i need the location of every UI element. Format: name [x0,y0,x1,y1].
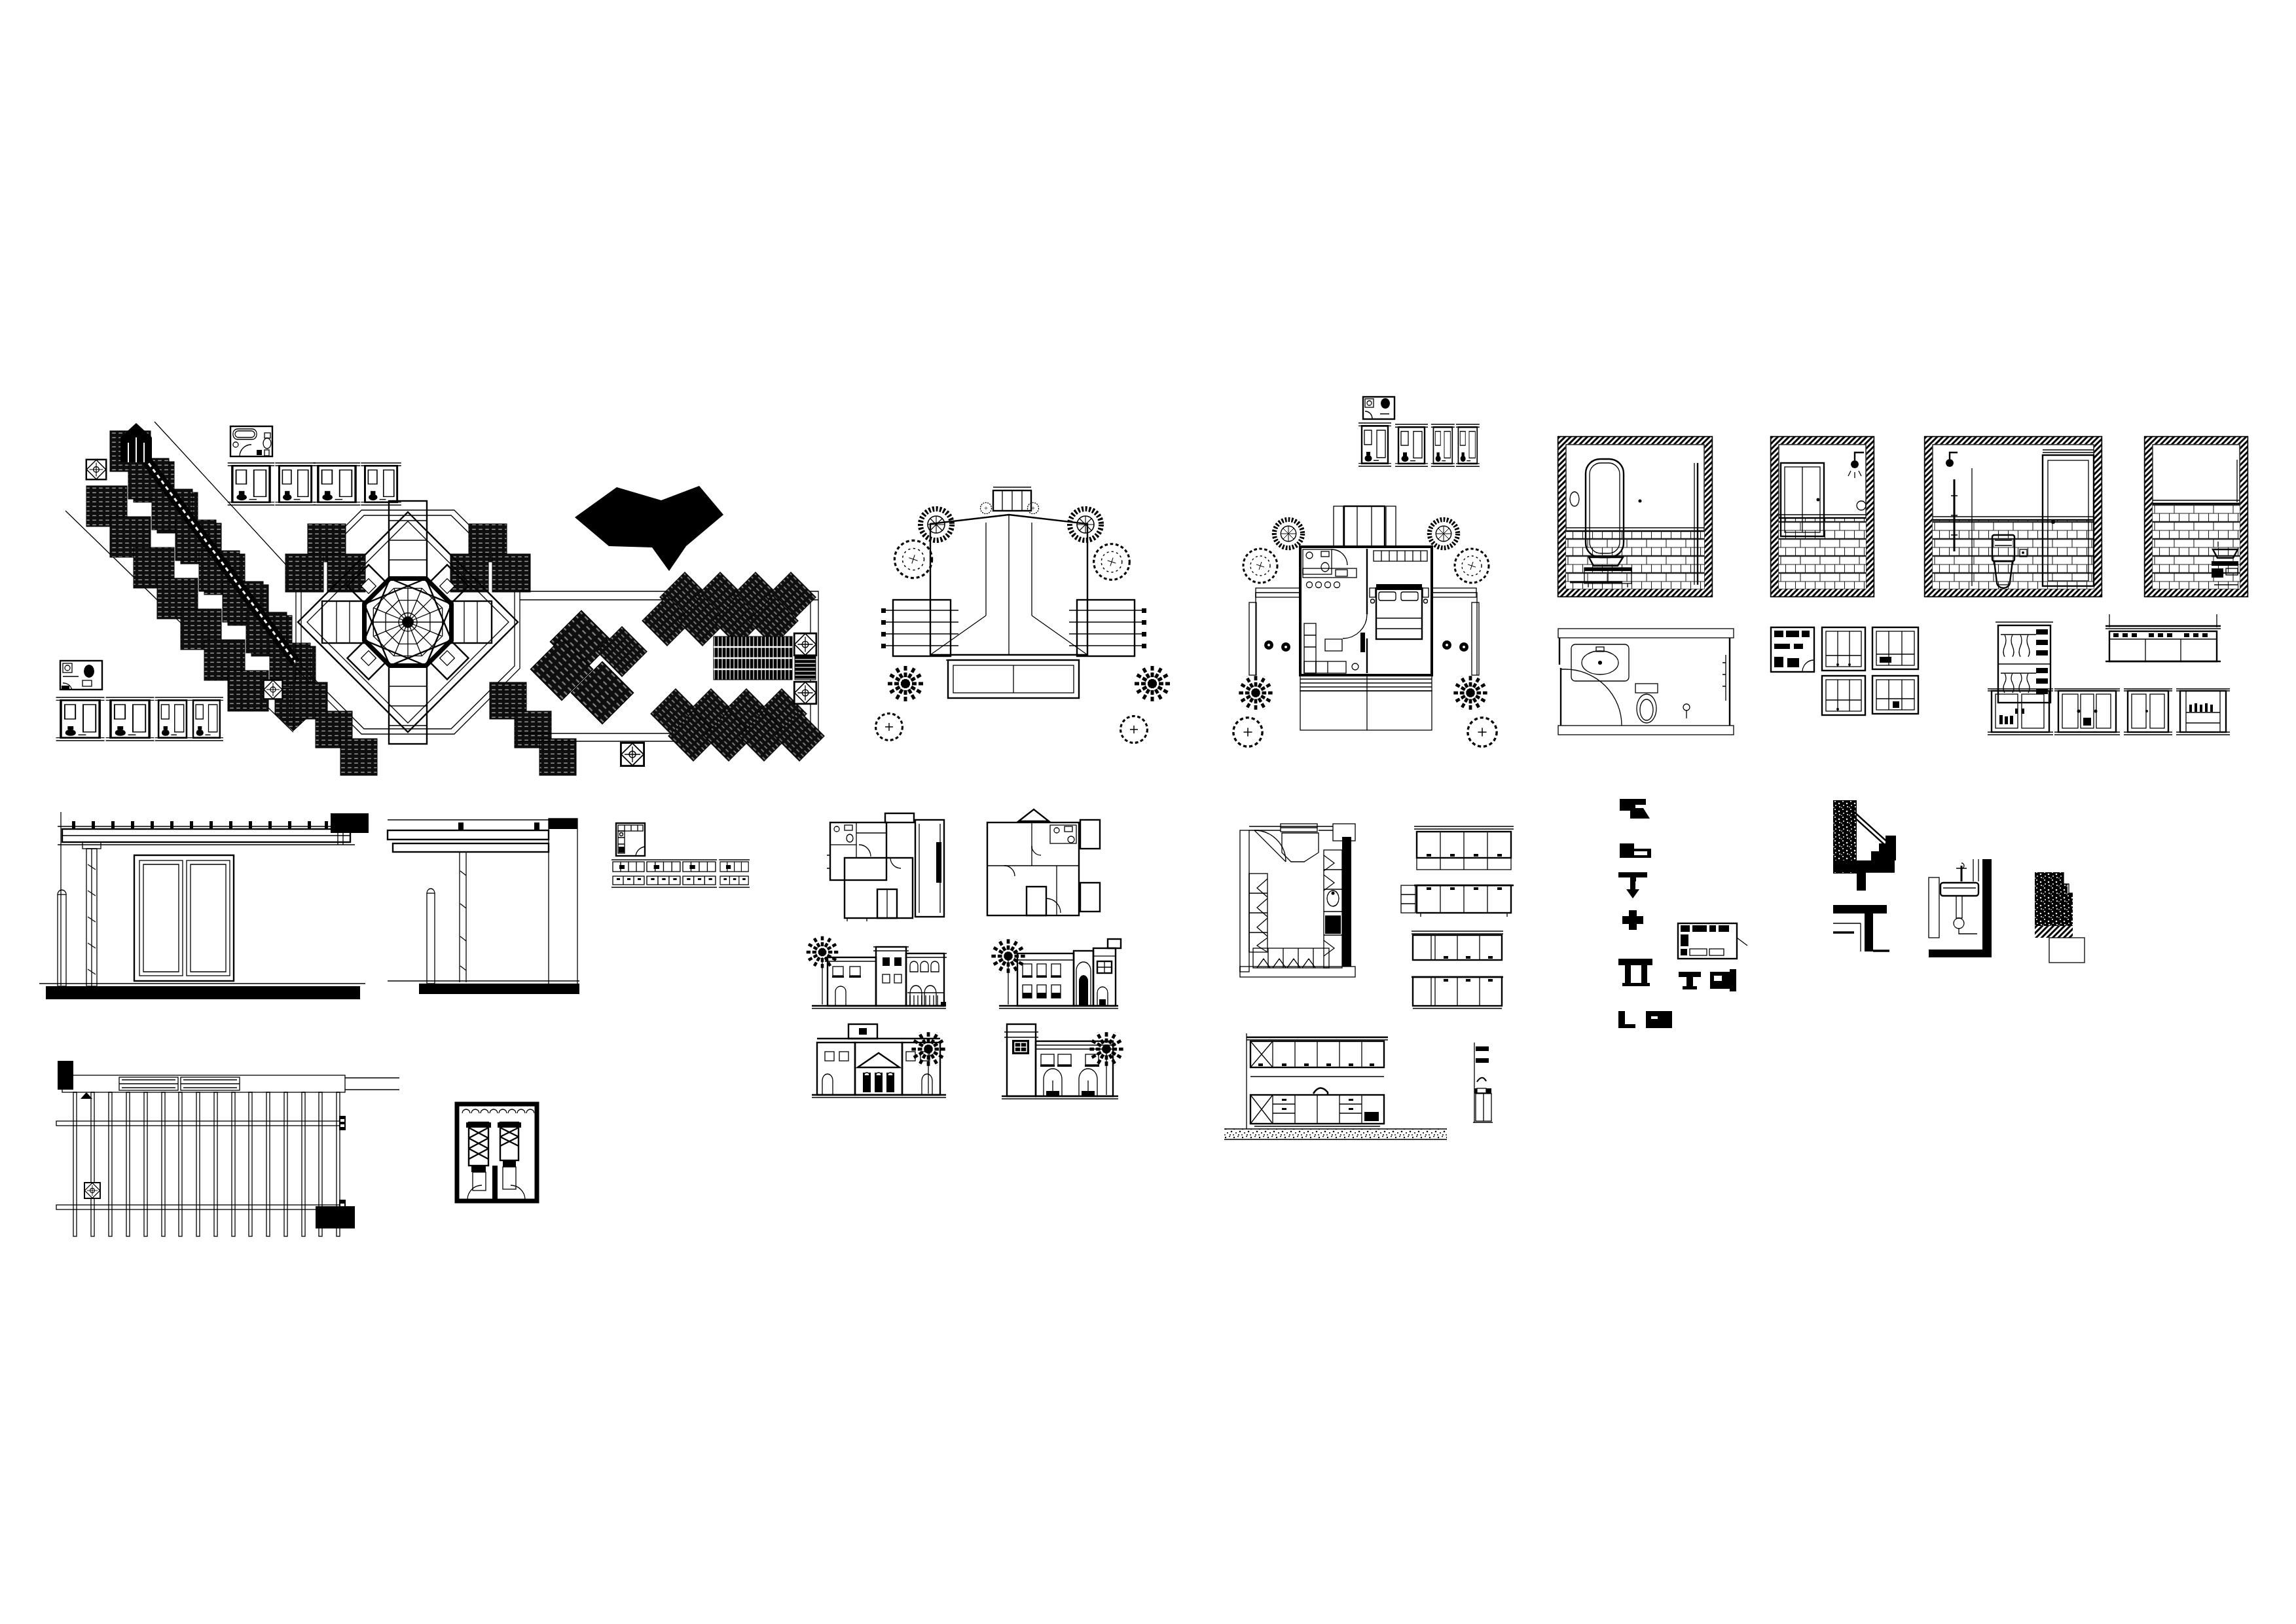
kitchen-elevation-row-small [611,860,750,887]
mini-kitchen-plan [1678,923,1747,959]
bathroom-plan-small-top-left [230,426,272,456]
kitchen-plan-small [616,823,645,856]
trellis-walkway [520,572,824,761]
pergola-elevation-front [39,812,369,999]
bathroom-elevation-corner-basin [2145,437,2248,597]
window-block-group [1771,627,1918,715]
villa-elevation-a [805,934,947,1008]
bathroom-plan-small-center [1363,397,1394,419]
bathroom-plan-large [1558,629,1734,735]
pergola-section-side [388,819,579,994]
cabinet-elevation-row [1988,689,2230,735]
pergola-roof-plan [56,1061,399,1236]
eave-section-detail [1833,800,1896,891]
kitchen-sink-elevation [1224,1033,1447,1139]
roof-chevron-marker [575,486,723,571]
floor-plan-villa-b [987,809,1100,915]
villa-elevation-b [990,938,1121,1009]
bathroom-plan-small-bottom-left [60,661,102,690]
kitchen-section-detail [1473,1043,1493,1122]
bathroom-elevation-shower-toilet-door [1925,437,2102,597]
furnished-cottage-plan [1233,506,1497,747]
drawing-canvas [0,0,2296,1624]
bathroom-elevation-window-shower [1771,437,1874,597]
villa-elevation-c [812,1024,947,1098]
site-walkway-plan [65,422,824,775]
bathroom-elevation-basin-mirror [1558,437,1712,597]
column-bay-plan-detail [457,1104,537,1201]
villa-elevation-d [1002,1024,1125,1099]
sink-plumbing-detail [1929,859,1992,957]
kitchen-cabinet-elevation-b [1412,931,1503,1008]
window-strip-elevation [2105,614,2221,661]
foundation-step-detail [2035,872,2085,963]
furniture-symbol-set [1618,799,1747,1028]
kitchen-cabinet-elevation-a [1401,826,1514,917]
kitchen-galley-plan [1240,824,1355,977]
bathroom-elevation-row-top-left [228,463,401,505]
floor-plan-villa-a [827,813,944,921]
bathroom-elevation-row-center [1358,423,1480,466]
roof-plan-house [876,487,1172,743]
bathroom-elevation-row-bottom-left [56,697,223,741]
corner-junction-detail [1833,905,1889,951]
